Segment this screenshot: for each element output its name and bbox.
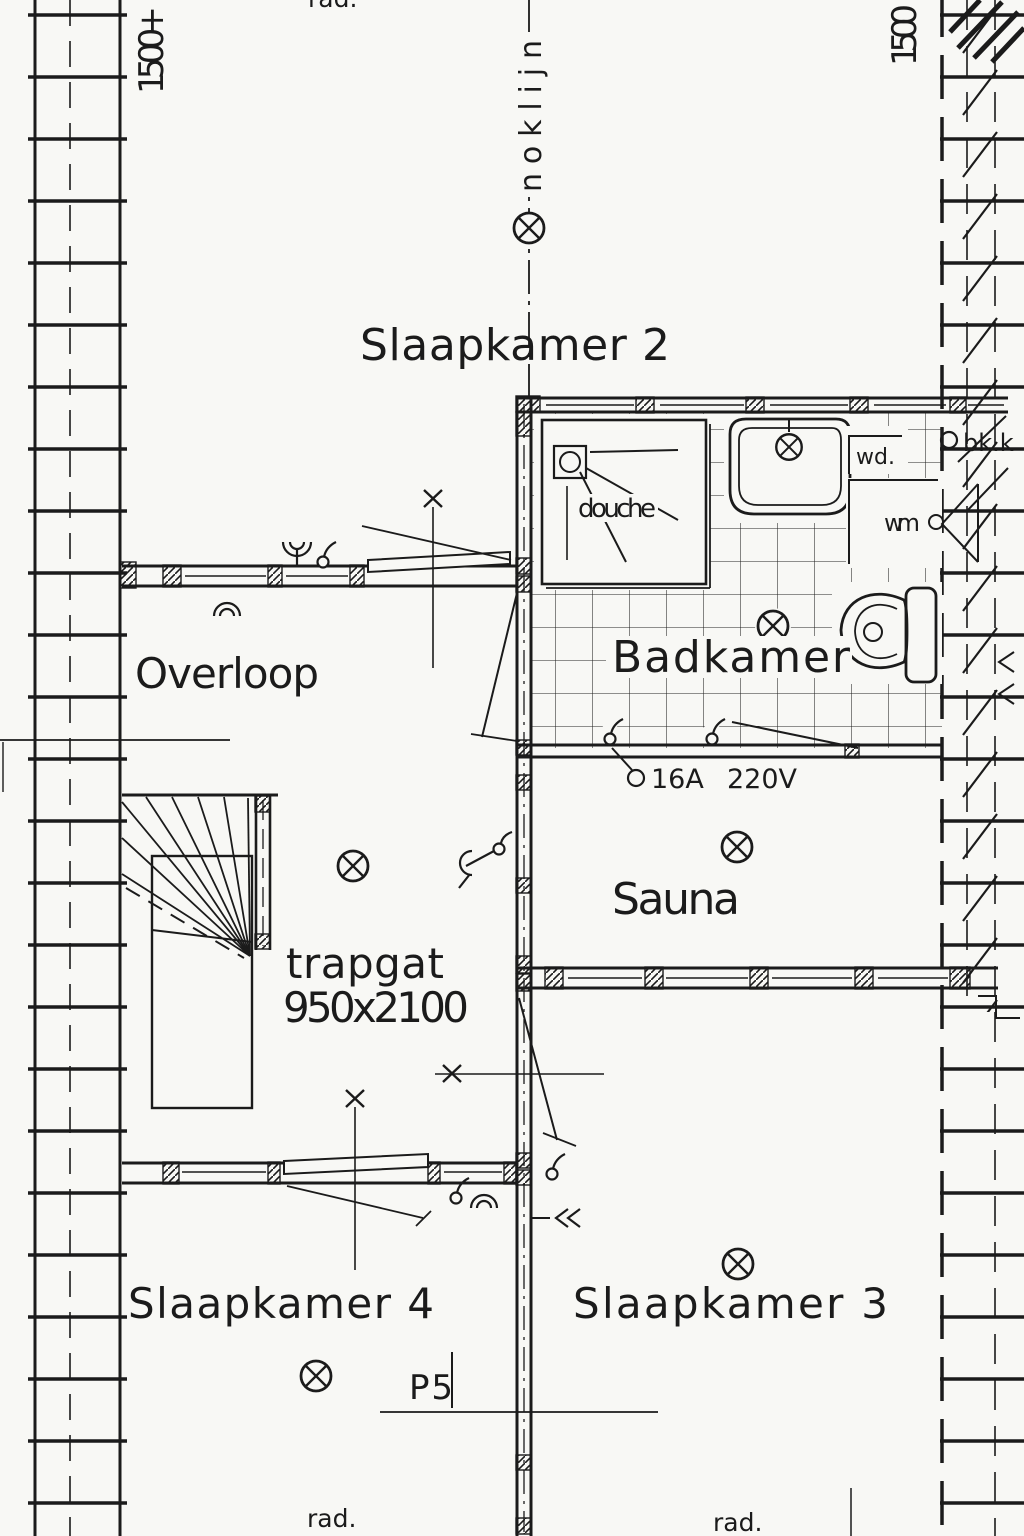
radiator-label-bottom-right: rad. bbox=[713, 1508, 762, 1536]
shower-label: douche bbox=[578, 494, 656, 524]
radiator-label-top: rad. bbox=[308, 0, 357, 13]
section-mark-label: P5 bbox=[409, 1368, 453, 1408]
bedroom2-label: Slaapkamer 2 bbox=[360, 320, 670, 371]
amps-label: 16A bbox=[651, 764, 704, 795]
washer-label: wm bbox=[884, 509, 920, 537]
radiator-label-bottom-left: rad. bbox=[307, 1504, 356, 1533]
landing-label: Overloop bbox=[135, 649, 319, 698]
ceiling-light-icon bbox=[723, 1249, 753, 1279]
level-label-left: 1500+ bbox=[132, 6, 172, 94]
volts-label: 220V bbox=[727, 764, 798, 795]
dryer-label: wd. bbox=[856, 445, 895, 470]
floor-plan-page: noklijn 1500+ 1500 rad. rad. rad. douche bbox=[0, 0, 1024, 1536]
sauna-label: Sauna bbox=[612, 874, 740, 925]
bathroom: douche wd. wm bbox=[532, 412, 978, 750]
dryer-position: wd. bbox=[846, 426, 908, 474]
right-exterior-wall bbox=[940, 0, 1024, 1536]
ceiling-light-icon bbox=[514, 213, 544, 243]
bedroom3-label: Slaapkamer 3 bbox=[573, 1279, 888, 1328]
left-exterior-wall bbox=[28, 0, 127, 1536]
bedroom4-label: Slaapkamer 4 bbox=[128, 1279, 434, 1328]
shower-unit: douche bbox=[534, 414, 710, 590]
bathroom-label: Badkamer bbox=[612, 632, 851, 683]
floor-plan-canvas: noklijn 1500+ 1500 rad. rad. rad. douche bbox=[0, 0, 1024, 1536]
stair-opening-label: trapgat bbox=[286, 939, 444, 988]
ceiling-light-icon bbox=[338, 851, 368, 881]
wash-basin bbox=[724, 413, 852, 523]
stair-size-label: 950x2100 bbox=[283, 983, 469, 1032]
level-label-right: 1500 bbox=[885, 4, 925, 66]
faucet-icon bbox=[776, 434, 802, 460]
ceiling-light-icon bbox=[722, 832, 752, 862]
ceiling-light-icon bbox=[301, 1361, 331, 1391]
